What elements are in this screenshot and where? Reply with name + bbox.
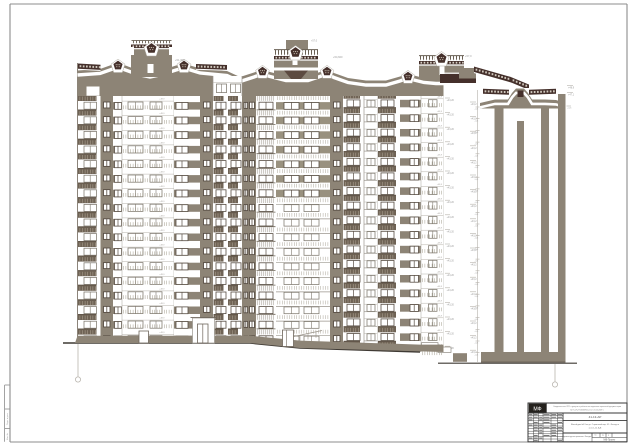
svg-text:+48,9: +48,9	[437, 126, 443, 128]
svg-text:+48,9: +48,9	[437, 169, 443, 171]
svg-text:МФ-Проект: МФ-Проект	[604, 439, 617, 442]
svg-text:+48,9: +48,9	[159, 303, 165, 305]
svg-text:+43,2: +43,2	[471, 337, 478, 340]
svg-text:+43,2: +43,2	[471, 205, 478, 208]
svg-text:Жилой дом №13 по ул. Строителе: Жилой дом №13 по ул. Строителей мкр. 41 …	[571, 423, 619, 426]
svg-text:+48,9: +48,9	[437, 140, 443, 142]
svg-text:+48,9: +48,9	[437, 286, 443, 288]
svg-text:+48,9: +48,9	[159, 201, 165, 203]
svg-text:Архитектурные решения. Фасады: Архитектурные решения. Фасады	[563, 435, 592, 438]
svg-text:+43,20: +43,20	[447, 230, 455, 233]
svg-text:+43,20: +43,20	[447, 187, 455, 190]
svg-text:+48,9: +48,9	[159, 113, 165, 115]
svg-text:+48,9: +48,9	[437, 199, 443, 201]
svg-text:№ П-175-7716563921-01 от 24.12: № П-175-7716563921-01 от 24.12.2009 г.	[570, 408, 604, 411]
svg-text:+43,20: +43,20	[447, 303, 455, 306]
svg-text:+48,9: +48,9	[159, 230, 165, 232]
svg-text:+48,9: +48,9	[437, 96, 443, 98]
svg-text:+48,9: +48,9	[159, 259, 165, 261]
svg-text:+48,9: +48,9	[159, 186, 165, 188]
svg-text:Инв. №: Инв. №	[6, 432, 9, 440]
svg-text:+43,20: +43,20	[447, 318, 455, 321]
svg-text:+48,9: +48,9	[159, 172, 165, 174]
svg-text:+43,20: +43,20	[447, 333, 455, 336]
svg-text:+48,9: +48,9	[159, 288, 165, 290]
svg-text:+43,20: +43,20	[447, 245, 455, 248]
svg-text:+43,20: +43,20	[447, 128, 455, 131]
svg-text:+48,9: +48,9	[437, 272, 443, 274]
svg-text:+43,2: +43,2	[471, 220, 478, 223]
svg-text:+48,9: +48,9	[437, 184, 443, 186]
svg-text:МФ: МФ	[533, 407, 541, 413]
svg-text:+57,0: +57,0	[465, 54, 472, 58]
svg-text:+43,20: +43,20	[447, 274, 455, 277]
svg-text:+43,2: +43,2	[471, 147, 478, 150]
svg-text:+43,20: +43,20	[447, 157, 455, 160]
svg-text:+48,9: +48,9	[437, 155, 443, 157]
svg-text:+43,20: +43,20	[447, 260, 455, 263]
svg-text:+48,9: +48,9	[159, 318, 165, 320]
svg-text:+51,300: +51,300	[175, 58, 185, 62]
svg-text:+48,9: +48,9	[437, 301, 443, 303]
svg-text:+48,9: +48,9	[159, 245, 165, 247]
svg-text:41-13-АР: 41-13-АР	[589, 415, 602, 419]
svg-text:+43,20: +43,20	[447, 172, 455, 175]
svg-text:+43,20: +43,20	[447, 216, 455, 219]
svg-text:Подп. и дата: Подп. и дата	[7, 412, 9, 425]
svg-text:+48,9: +48,9	[159, 157, 165, 159]
svg-text:+54,600: +54,600	[333, 55, 343, 59]
svg-text:+57,0: +57,0	[311, 40, 318, 43]
svg-text:+48,9: +48,9	[437, 315, 443, 317]
svg-text:+43,20: +43,20	[447, 201, 455, 204]
svg-text:+48,9: +48,9	[568, 87, 575, 90]
svg-text:+43,20: +43,20	[447, 289, 455, 292]
svg-text:+48,9: +48,9	[437, 242, 443, 244]
svg-text:+47,1: +47,1	[568, 94, 575, 97]
svg-text:осях 1-12, А-В: осях 1-12, А-В	[589, 426, 602, 429]
svg-text:+43,2: +43,2	[471, 322, 478, 325]
svg-text:+43,20: +43,20	[447, 99, 455, 102]
svg-text:+48,9: +48,9	[159, 142, 165, 144]
svg-text:+48,9: +48,9	[159, 128, 165, 130]
svg-text:Свидетельство СРО о допуске к: Свидетельство СРО о допуске к работам по…	[553, 405, 621, 408]
svg-text:+48,9: +48,9	[437, 111, 443, 113]
svg-text:+48,9: +48,9	[437, 330, 443, 332]
svg-text:+43,2: +43,2	[471, 278, 478, 281]
svg-text:+43,20: +43,20	[447, 143, 455, 146]
svg-text:+43,2: +43,2	[471, 103, 478, 106]
svg-text:+48,9: +48,9	[159, 99, 165, 101]
svg-text:+48,9: +48,9	[159, 274, 165, 276]
svg-text:+48,9: +48,9	[437, 228, 443, 230]
svg-text:+48,9: +48,9	[159, 215, 165, 217]
svg-text:+48,9: +48,9	[437, 213, 443, 215]
svg-text:+43,20: +43,20	[447, 114, 455, 117]
svg-text:+43,2: +43,2	[471, 161, 478, 164]
svg-text:+48,9: +48,9	[437, 257, 443, 259]
svg-text:+48,9: +48,9	[159, 332, 165, 334]
svg-text:+43,2: +43,2	[471, 264, 478, 267]
